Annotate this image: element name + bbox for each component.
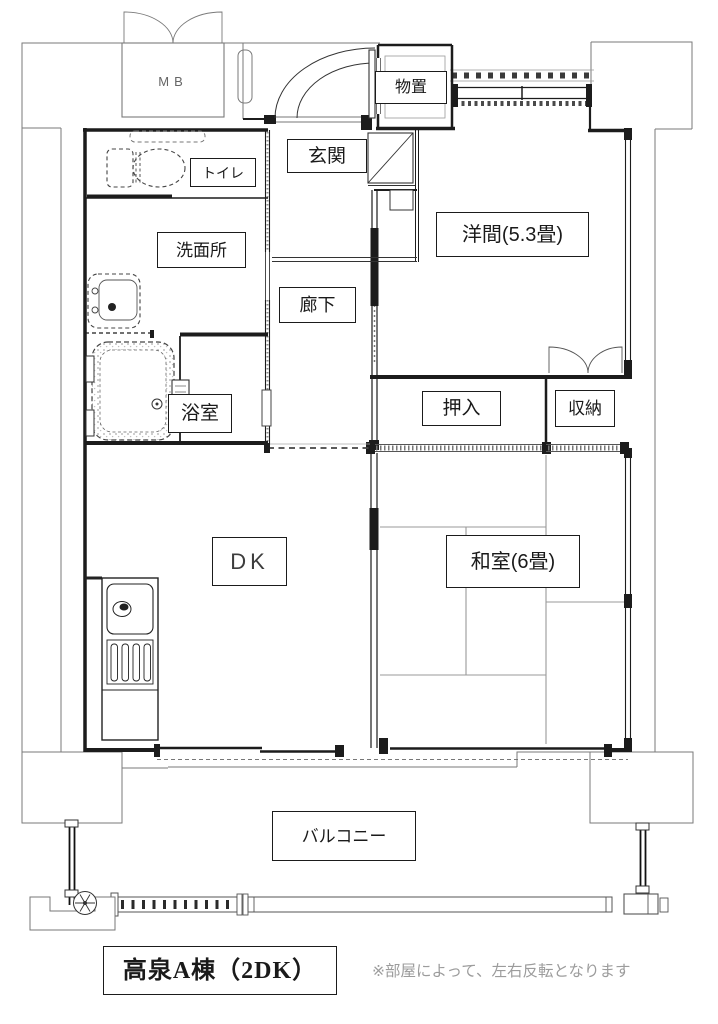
washbasin-icon bbox=[88, 274, 140, 328]
room-label-balcony: バルコニー bbox=[272, 811, 416, 861]
mb-doors-icon bbox=[124, 12, 222, 43]
room-label-toilet: トイレ bbox=[190, 158, 256, 187]
floorplan-page: MB 物置 玄関 トイレ 洗面所 廊下 洋間(5.3畳) 浴室 押入 収納 DK… bbox=[0, 0, 718, 1024]
room-label-mb: MB bbox=[128, 66, 218, 96]
room-label-hallway: 廊下 bbox=[279, 287, 356, 323]
drain-fan-icon bbox=[74, 892, 97, 915]
tatami-lines bbox=[380, 455, 624, 744]
room-label-futon-closet: 押入 bbox=[422, 391, 501, 426]
room-label-entrance: 玄関 bbox=[287, 139, 367, 173]
western-room-window bbox=[452, 84, 592, 107]
shoe-cabinet-icon bbox=[368, 133, 415, 210]
eave-strip bbox=[450, 70, 594, 81]
room-label-japanese-room: 和室(6畳) bbox=[446, 535, 580, 588]
corner-pillar-block bbox=[30, 897, 115, 930]
room-label-storage-top: 物置 bbox=[375, 71, 447, 104]
kitchen-sink-icon bbox=[85, 578, 158, 740]
room-label-western-room: 洋間(5.3畳) bbox=[436, 212, 589, 257]
meter-box bbox=[122, 12, 252, 117]
room-label-washroom: 洗面所 bbox=[157, 232, 246, 268]
unit-name-label: 高泉A棟（2DK） bbox=[103, 946, 337, 995]
balcony-railing bbox=[111, 893, 668, 916]
drain-pipe-right bbox=[636, 823, 649, 893]
room-label-storage-closet: 収納 bbox=[555, 390, 615, 427]
drain-pipe-left bbox=[65, 820, 78, 905]
room-label-dining-kitchen: DK bbox=[212, 537, 287, 586]
mirror-note-label: ※部屋によって、左右反転となります bbox=[372, 958, 672, 986]
entrance-door-arc-icon bbox=[275, 48, 375, 118]
room-label-bathroom: 浴室 bbox=[168, 394, 232, 433]
storage-doors-icon bbox=[549, 347, 622, 373]
